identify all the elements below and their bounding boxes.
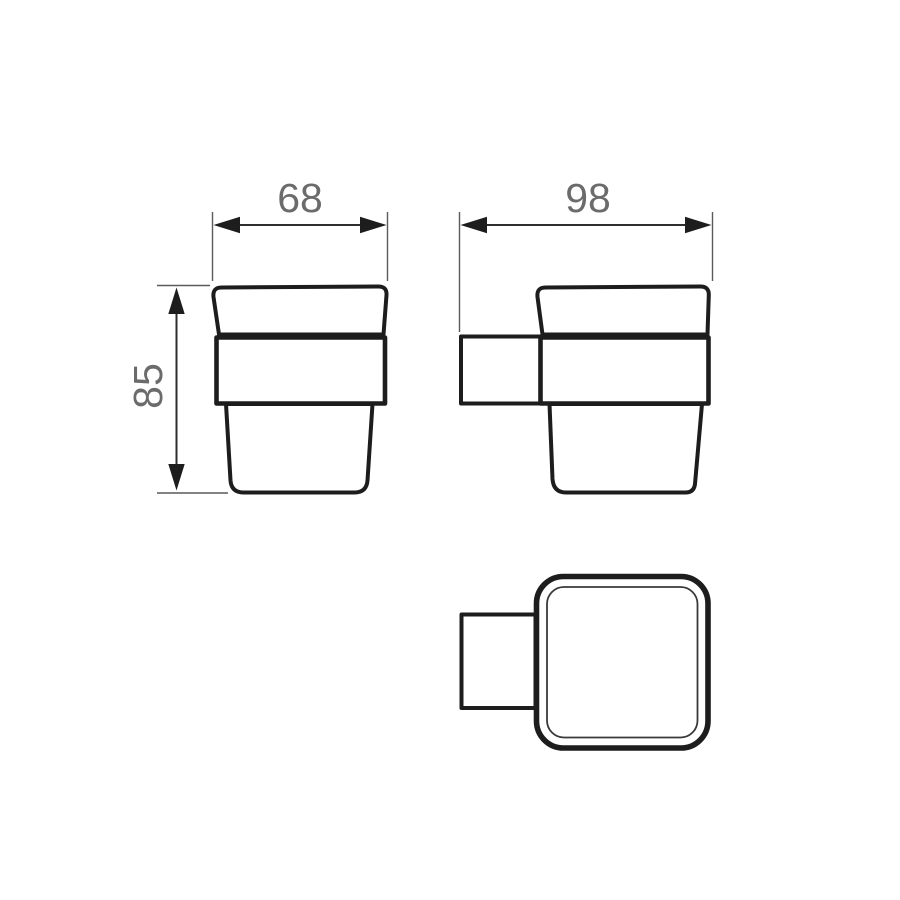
front-cup-body-outline (226, 404, 373, 493)
front-view (213, 287, 386, 493)
arrowhead-top-icon (168, 288, 184, 315)
arrowhead-bottom-icon (168, 464, 184, 491)
technical-drawing: 68 98 85 (0, 0, 900, 900)
drawing-canvas: 68 98 85 (0, 0, 900, 900)
top-cup-outer-outline (537, 577, 709, 749)
arrowhead-left-icon (214, 217, 241, 233)
side-wall-bracket-outline (461, 337, 541, 404)
side-cup-body-outline (550, 404, 703, 493)
dimension-front-width: 68 (213, 175, 388, 281)
front-holder-band-outline (217, 338, 386, 404)
arrowhead-right-icon (685, 217, 712, 233)
dimension-front-height: 85 (125, 286, 228, 494)
dimension-label-front-width: 68 (277, 175, 323, 221)
side-cup-rim-outline (537, 287, 708, 335)
side-holder-band-outline (541, 338, 709, 404)
top-wall-bracket-outline (462, 615, 536, 709)
arrowhead-left-icon (461, 217, 488, 233)
dimension-label-front-height: 85 (125, 363, 171, 409)
dimension-label-side-depth: 98 (565, 175, 611, 221)
side-view (461, 287, 709, 493)
front-cup-rim-outline (213, 287, 386, 335)
arrowhead-right-icon (360, 217, 387, 233)
top-view (462, 577, 709, 749)
